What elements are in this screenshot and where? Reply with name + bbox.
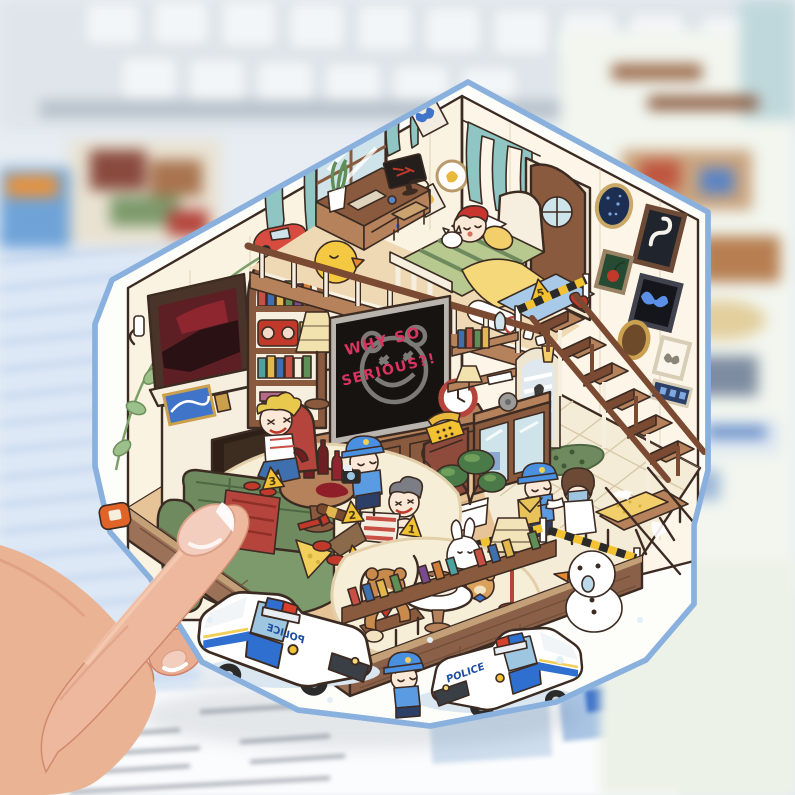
table-fan bbox=[499, 393, 517, 411]
bottle bbox=[495, 312, 506, 330]
white-coat bbox=[564, 500, 596, 536]
moth-frame-white bbox=[654, 337, 690, 379]
marker-number: 2 bbox=[348, 509, 357, 523]
cherry-frame bbox=[596, 251, 632, 293]
photo-of-sticker-in-hand: 5 bbox=[0, 0, 795, 795]
mini-shovel-sign-sticker bbox=[98, 502, 132, 531]
plush-cat bbox=[442, 232, 462, 248]
scene: 5 bbox=[0, 0, 795, 795]
snowman-mouth bbox=[582, 576, 594, 592]
